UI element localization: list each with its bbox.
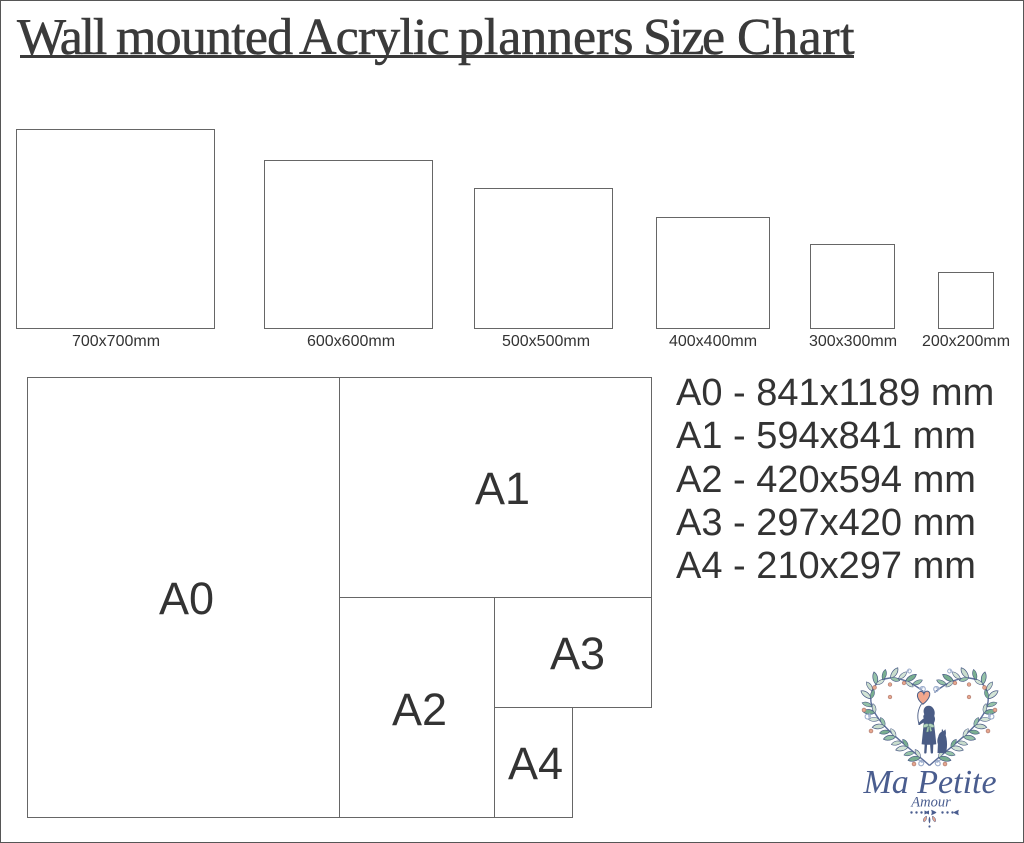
svg-text:Amour: Amour xyxy=(910,795,951,811)
